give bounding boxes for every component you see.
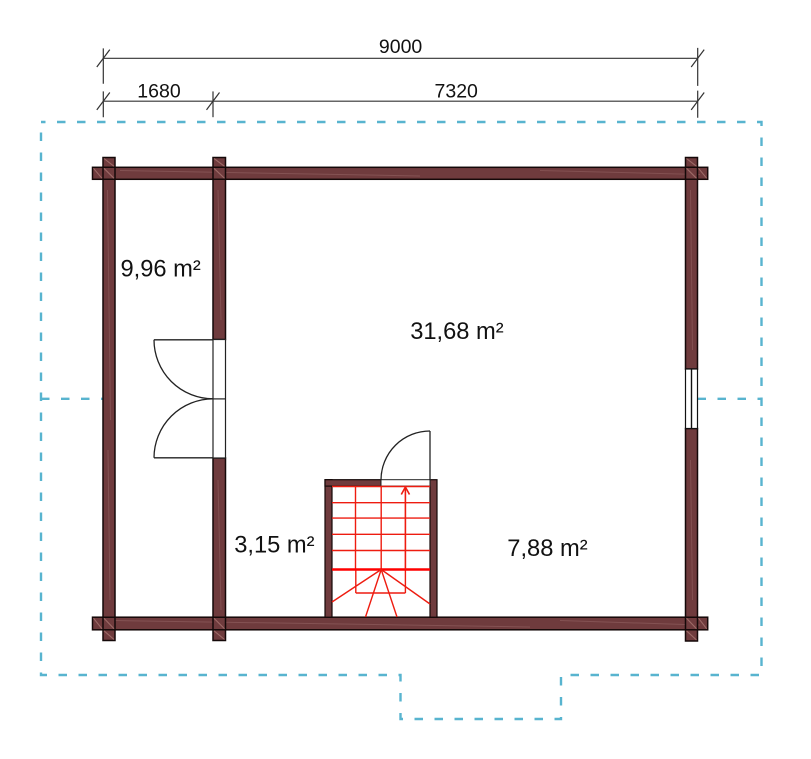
svg-text:7,88 m²: 7,88 m²: [507, 536, 587, 562]
svg-text:9,96 m²: 9,96 m²: [121, 256, 201, 282]
svg-text:31,68 m²: 31,68 m²: [410, 319, 504, 345]
svg-text:3,15 m²: 3,15 m²: [234, 533, 314, 559]
svg-text:9000: 9000: [379, 36, 423, 58]
svg-text:7320: 7320: [435, 80, 479, 102]
svg-text:1680: 1680: [137, 80, 181, 102]
